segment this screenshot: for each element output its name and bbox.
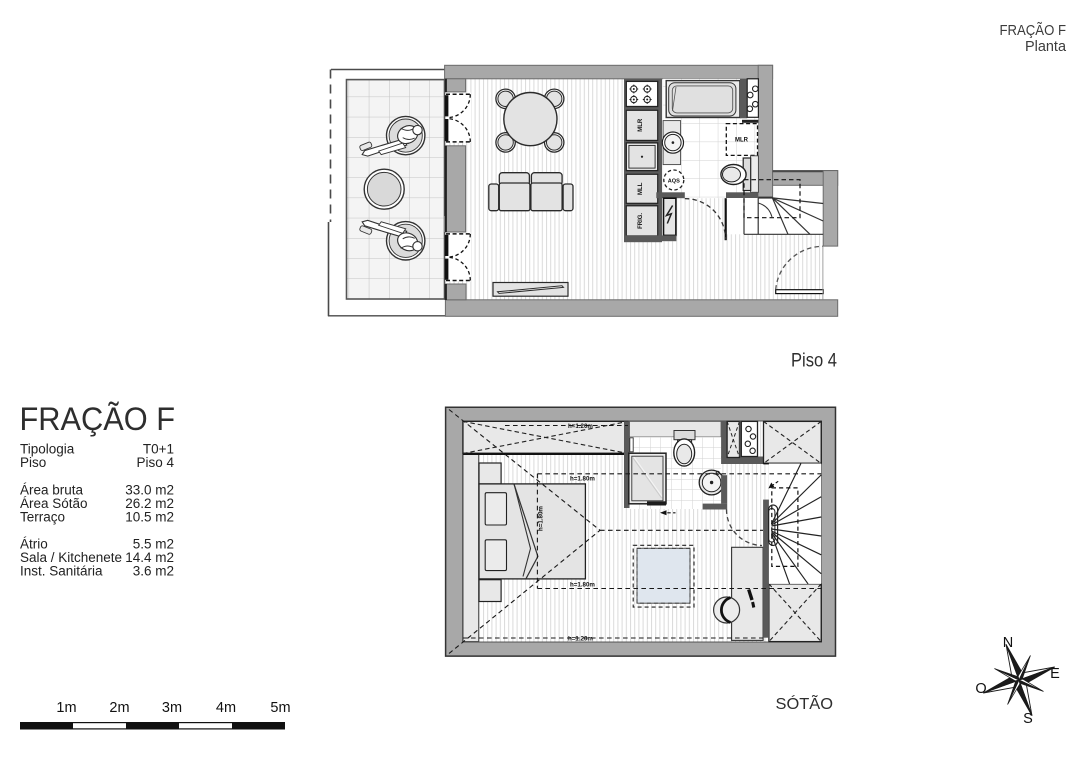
svg-text:Planta: Planta: [1025, 38, 1067, 55]
svg-text:AQS: AQS: [668, 178, 680, 184]
svg-text:Piso 4: Piso 4: [791, 350, 837, 372]
svg-text:h=1.20m: h=1.20m: [568, 423, 593, 430]
svg-text:E: E: [1050, 666, 1060, 682]
svg-text:h=1.80m: h=1.80m: [570, 476, 595, 483]
svg-text:h=1.20m: h=1.20m: [568, 636, 593, 643]
svg-text:SÓTÃO: SÓTÃO: [776, 696, 834, 713]
svg-text:MLR: MLR: [638, 118, 644, 132]
svg-text:MLL: MLL: [638, 182, 644, 195]
svg-text:Piso: Piso: [20, 455, 46, 470]
svg-text:3m: 3m: [162, 700, 182, 716]
svg-text:3.6 m2: 3.6 m2: [133, 564, 174, 579]
svg-text:FRIG.: FRIG.: [638, 213, 644, 229]
svg-text:O: O: [975, 681, 986, 697]
svg-text:MLR: MLR: [735, 138, 749, 144]
svg-text:N: N: [1003, 635, 1013, 651]
svg-text:Piso 4: Piso 4: [136, 455, 174, 470]
svg-text:Inst. Sanitária: Inst. Sanitária: [20, 564, 103, 579]
svg-text:h=1.80m: h=1.80m: [570, 582, 595, 589]
svg-text:10.5 m2: 10.5 m2: [125, 510, 174, 525]
svg-text:4m: 4m: [216, 700, 236, 716]
svg-text:FRAÇÃO F: FRAÇÃO F: [1000, 22, 1067, 39]
svg-text:h=1.80m: h=1.80m: [538, 506, 545, 531]
svg-text:Terraço: Terraço: [20, 510, 65, 525]
svg-text:FRAÇÃO F: FRAÇÃO F: [20, 401, 176, 437]
svg-text:S: S: [1023, 711, 1033, 727]
svg-text:1m: 1m: [56, 700, 76, 716]
svg-text:2m: 2m: [109, 700, 129, 716]
svg-text:5m: 5m: [270, 700, 290, 716]
